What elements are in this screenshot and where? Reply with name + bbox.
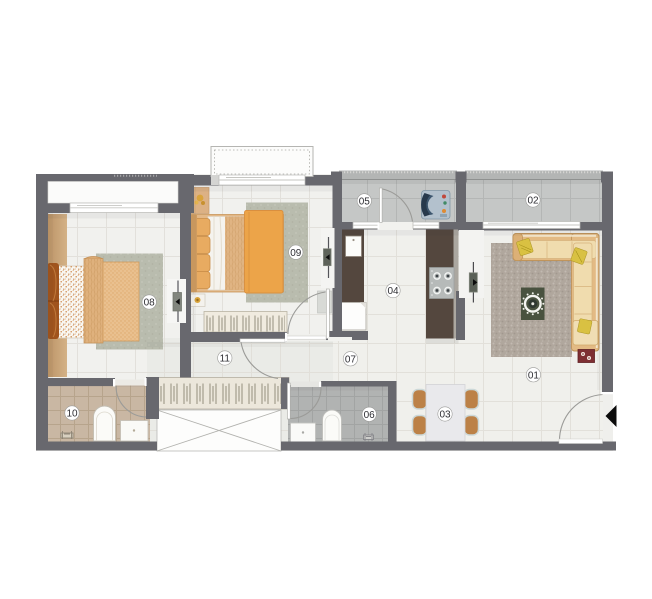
svg-text:01: 01 bbox=[528, 370, 540, 381]
svg-text:05: 05 bbox=[359, 197, 371, 208]
svg-text:09: 09 bbox=[290, 248, 302, 259]
svg-text:11: 11 bbox=[220, 354, 231, 365]
svg-text:07: 07 bbox=[345, 354, 357, 365]
svg-text:10: 10 bbox=[66, 409, 78, 420]
svg-text:08: 08 bbox=[144, 298, 156, 309]
svg-text:06: 06 bbox=[364, 410, 376, 421]
svg-text:03: 03 bbox=[439, 410, 451, 421]
svg-text:02: 02 bbox=[527, 196, 539, 207]
svg-text:04: 04 bbox=[387, 286, 399, 297]
